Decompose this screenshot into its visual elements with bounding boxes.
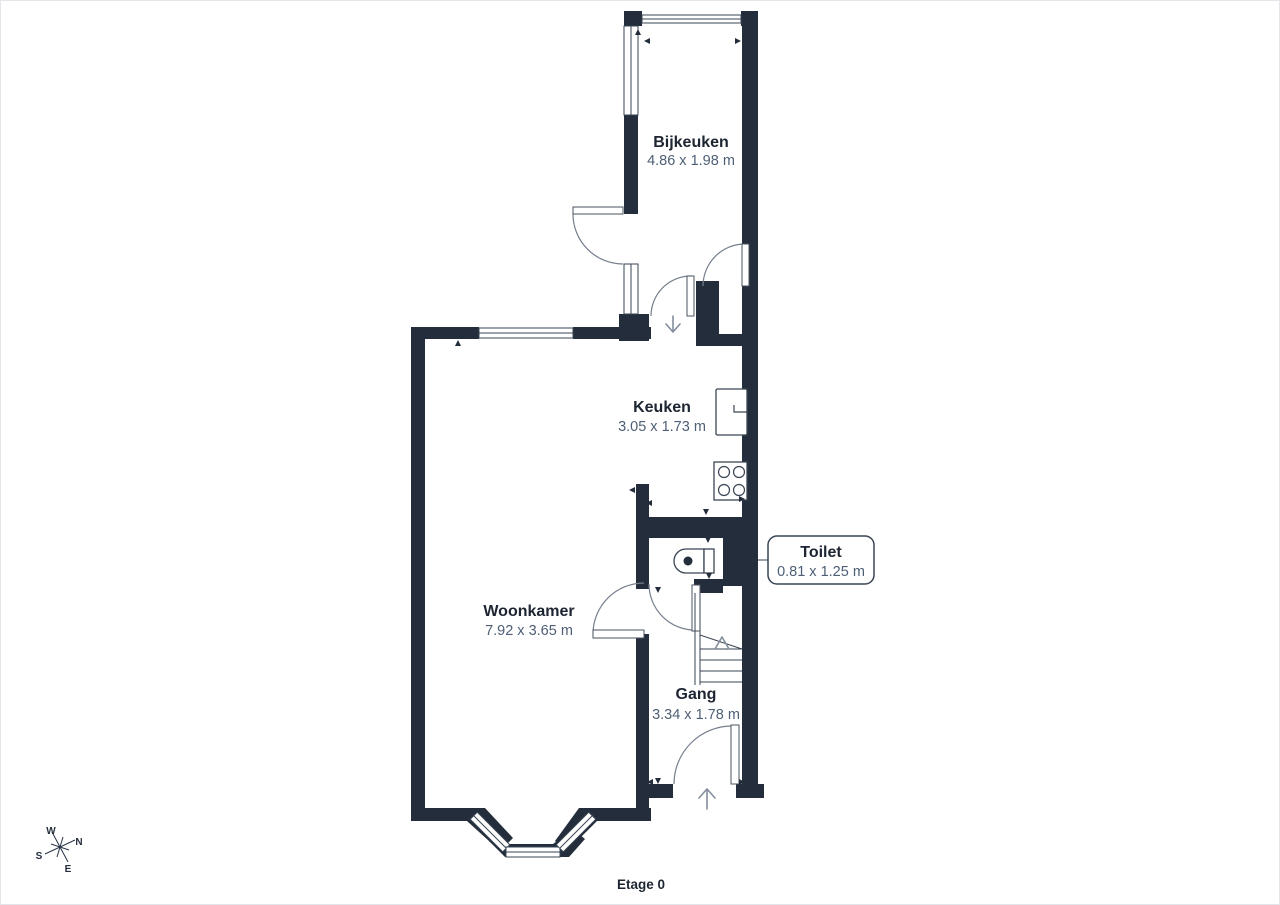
front-entrance-arrow-icon bbox=[699, 789, 715, 809]
back-entrance-arrow-icon bbox=[666, 316, 680, 332]
door-toilet bbox=[649, 584, 700, 631]
room-dims-keuken: 3.05 x 1.73 m bbox=[618, 419, 706, 435]
callout-room-name: Toilet bbox=[800, 544, 842, 561]
toilet-fixture bbox=[674, 549, 714, 573]
compass-rose: W N S E bbox=[36, 826, 83, 875]
stairs bbox=[695, 593, 742, 685]
compass-west-label: W bbox=[46, 826, 56, 837]
compass-south-label: S bbox=[36, 851, 43, 862]
room-dims-bijkeuken: 4.86 x 1.98 m bbox=[647, 153, 735, 169]
room-dims-gang: 3.34 x 1.78 m bbox=[652, 707, 740, 723]
stairs-up-arrow-icon bbox=[715, 637, 729, 649]
compass-north-label: N bbox=[75, 837, 82, 848]
room-dims-woonkamer: 7.92 x 3.65 m bbox=[485, 623, 573, 639]
room-label-woonkamer: Woonkamer bbox=[483, 603, 574, 620]
window-keuken-north bbox=[479, 328, 573, 338]
room-label-gang: Gang bbox=[676, 686, 717, 703]
kitchen-sink bbox=[716, 389, 747, 435]
window-bijkeuken-left-lower bbox=[624, 264, 638, 314]
room-label-keuken: Keuken bbox=[633, 399, 691, 416]
compass-east-label: E bbox=[65, 864, 72, 875]
door-bijkeuken-side bbox=[573, 207, 623, 264]
toilet-callout: Toilet 0.81 x 1.25 m bbox=[758, 536, 874, 584]
door-front bbox=[674, 725, 739, 784]
callout-room-dims: 0.81 x 1.25 m bbox=[777, 564, 865, 580]
stove bbox=[714, 462, 747, 500]
door-passage-right bbox=[703, 244, 749, 286]
floorplan-canvas: Bijkeuken 4.86 x 1.98 m Keuken 3.05 x 1.… bbox=[1, 1, 1280, 905]
window-bijkeuken-left-upper bbox=[624, 26, 638, 115]
door-woonkamer-gang bbox=[593, 583, 644, 638]
room-label-bijkeuken: Bijkeuken bbox=[653, 134, 729, 151]
floor-label: Etage 0 bbox=[617, 877, 665, 892]
window-bay-bottom bbox=[506, 847, 560, 857]
door-passage-left bbox=[651, 276, 694, 316]
floorplan-page: Bijkeuken 4.86 x 1.98 m Keuken 3.05 x 1.… bbox=[0, 0, 1280, 905]
window-bijkeuken-top bbox=[642, 15, 741, 23]
